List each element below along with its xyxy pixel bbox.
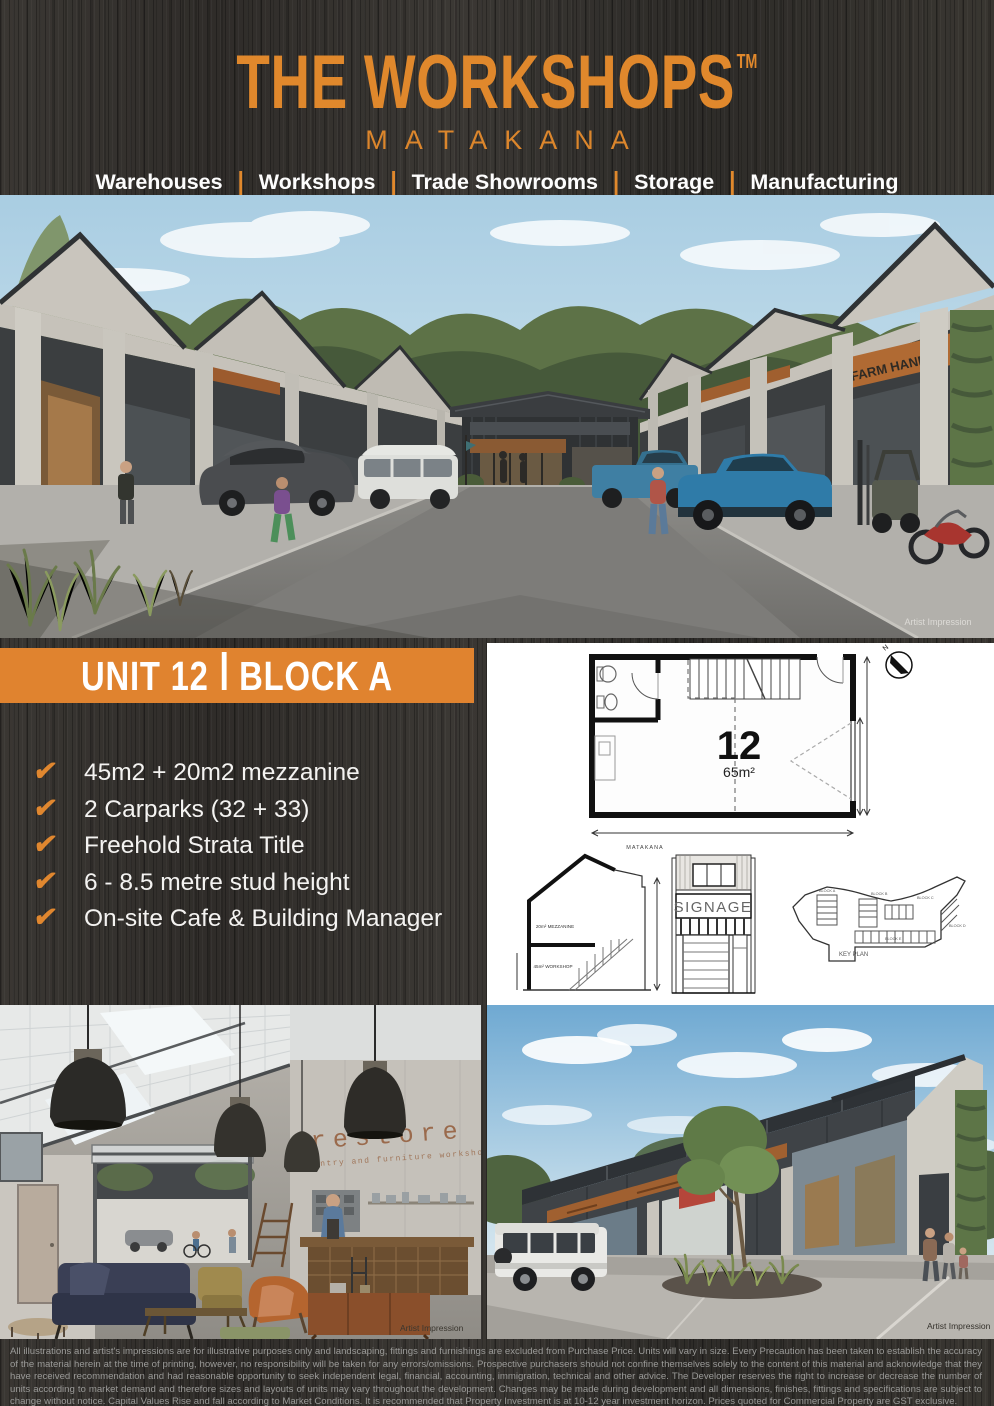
feature-area: ✔45m2 + 20m2 mezzanine	[34, 756, 442, 793]
feature-stud-height: ✔6 - 8.5 metre stud height	[34, 866, 442, 903]
section-drawing: MATAKANA 20m² MEZZANINE 45m² WORKSHOP	[517, 845, 664, 990]
category-divider: |	[729, 166, 735, 197]
category-workshops: Workshops	[259, 170, 376, 195]
unit-info-panel: UNIT 12BLOCK A ✔45m2 + 20m2 mezzanine ✔2…	[0, 638, 481, 1005]
hero-render-image: FARM HAND	[0, 195, 994, 638]
feature-cafe-manager: ✔On-site Cafe & Building Manager	[34, 902, 442, 939]
flyer-page: THE WORKSHOPSTM MATAKANA Warehouses| Wor…	[0, 0, 994, 1406]
workshop-label: 45m² WORKSHOP	[533, 964, 572, 969]
matakana-plan-label: MATAKANA	[626, 845, 663, 851]
key-plan-block-c: BLOCK C	[917, 896, 934, 900]
interior-render-image: restore carpentry and furniture workshop	[0, 1005, 481, 1339]
interior-caption: Artist Impression	[400, 1323, 464, 1333]
feature-title: ✔Freehold Strata Title	[34, 829, 442, 866]
banner-block-label: BLOCK A	[239, 653, 393, 699]
category-divider: |	[238, 166, 244, 197]
key-plan-drawing: BLOCK A BLOCK B BLOCK C BLOCK D BLOCK E …	[793, 877, 966, 961]
stairs	[690, 659, 800, 699]
floor-plan-panel: 12 65m² N MATAKANA	[487, 643, 994, 1005]
north-compass-icon: N	[882, 644, 912, 678]
key-plan-label: KEY PLAN	[839, 952, 868, 958]
open-roller-door-view	[92, 1145, 255, 1263]
check-icon: ✔	[31, 866, 86, 897]
key-plan-block-e: BLOCK E	[885, 937, 902, 941]
hero-caption: Artist Impression	[904, 617, 971, 627]
category-divider: |	[613, 166, 619, 197]
plan-unit-number: 12	[717, 724, 762, 768]
key-plan-block-d: BLOCK D	[949, 924, 966, 928]
signage-label: SIGNAGE	[674, 899, 753, 916]
check-icon: ✔	[31, 793, 86, 824]
brand-location: MATAKANA	[0, 125, 994, 156]
front-elevation-drawing: SIGNAGE	[672, 855, 755, 993]
compass-n: N	[882, 644, 890, 653]
check-icon: ✔	[31, 902, 86, 933]
unit-banner: UNIT 12BLOCK A	[0, 648, 474, 703]
category-storage: Storage	[634, 170, 714, 195]
category-trade-showrooms: Trade Showrooms	[412, 170, 598, 195]
category-bar: Warehouses| Workshops| Trade Showrooms| …	[0, 169, 994, 195]
key-plan-block-b: BLOCK B	[871, 892, 888, 896]
key-plan-block-a: BLOCK A	[819, 889, 836, 893]
disclaimer-text: All illustrations and artist's impressio…	[10, 1346, 982, 1406]
header: THE WORKSHOPSTM MATAKANA Warehouses| Wor…	[0, 0, 994, 195]
category-warehouses: Warehouses	[96, 170, 223, 195]
feature-list: ✔45m2 + 20m2 mezzanine ✔2 Carparks (32 +…	[34, 756, 442, 939]
exterior-caption: Artist Impression	[927, 1321, 991, 1331]
mezzanine-label: 20m² MEZZANINE	[536, 924, 574, 929]
category-divider: |	[390, 166, 396, 197]
exterior-render-image: Artist Impression	[487, 1005, 994, 1339]
trademark-symbol: TM	[737, 51, 758, 73]
banner-unit-label: UNIT 12	[81, 653, 209, 699]
hero-scene: FARM HAND	[0, 195, 994, 638]
page-title: THE WORKSHOPSTM	[0, 0, 994, 123]
check-icon: ✔	[31, 829, 86, 860]
forklift	[860, 440, 920, 533]
feature-carparks: ✔2 Carparks (32 + 33)	[34, 793, 442, 830]
interior-scene: restore carpentry and furniture workshop	[0, 1005, 481, 1339]
check-icon: ✔	[31, 756, 86, 787]
unit-12-floor-plan: 12 65m²	[592, 657, 855, 815]
banner-divider	[222, 652, 227, 690]
exterior-scene: Artist Impression	[487, 1005, 994, 1339]
category-manufacturing: Manufacturing	[750, 170, 898, 195]
floor-plan-drawing: 12 65m² N MATAKANA	[487, 643, 994, 1005]
plan-area: 65m²	[723, 764, 755, 780]
